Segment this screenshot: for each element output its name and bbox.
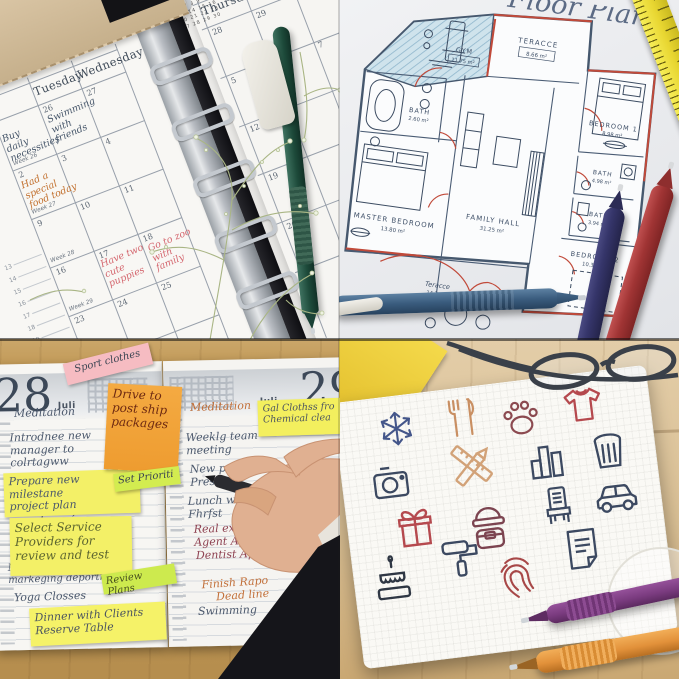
photo-icon-doodles — [339, 339, 679, 679]
ruler-and-pencil-icon — [441, 433, 506, 498]
birthday-cake-icon — [365, 552, 421, 610]
document-icon — [557, 521, 609, 576]
collage: June M T W T F S S 1 2 3 4 5 6 7 8 9 10 … — [0, 0, 679, 679]
photo-weekly-planner: June M T W T F S S 1 2 3 4 5 6 7 8 9 10 … — [0, 0, 340, 340]
writing-hand — [0, 339, 340, 679]
paint-roller-icon — [435, 532, 489, 589]
gift-box-icon — [389, 501, 442, 554]
camera-icon — [365, 458, 416, 505]
blue-pen-grip — [450, 290, 514, 312]
bar-chart-icon — [520, 435, 571, 484]
car-icon — [588, 468, 643, 520]
eyeglasses — [339, 339, 679, 434]
collage-vertical-seam — [338, 0, 340, 679]
photo-floor-plan: Floor Plan — [339, 0, 679, 340]
fingerprint-icon — [487, 547, 545, 607]
photo-daily-planner: 28 Juli Juli 29 Meditation Introdnee new… — [0, 339, 340, 679]
green-pen-nib — [310, 328, 315, 334]
